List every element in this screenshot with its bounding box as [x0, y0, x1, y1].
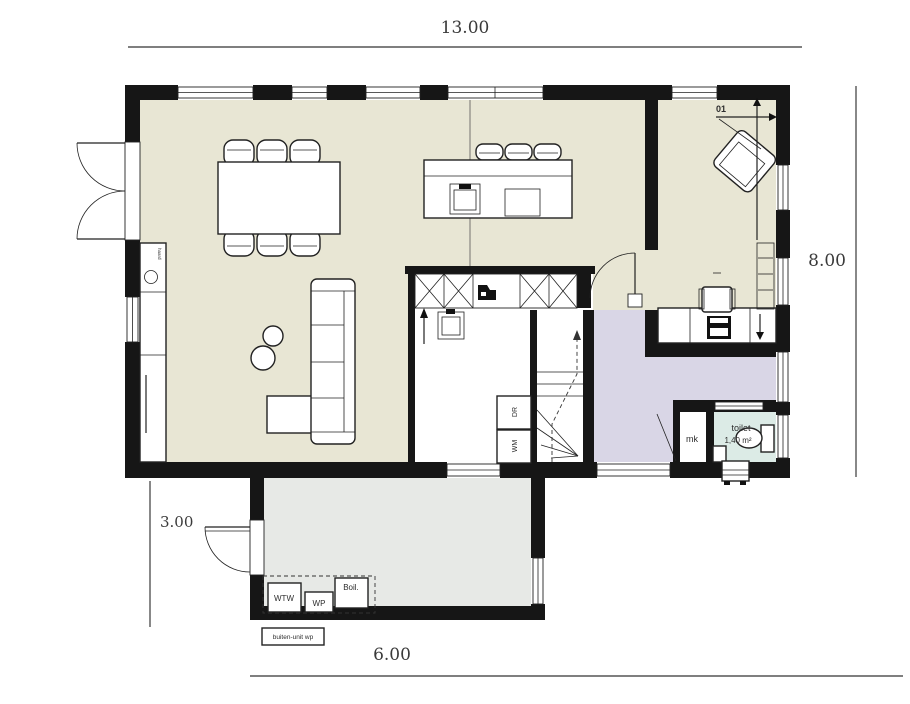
svg-text:buiten-unit wp: buiten-unit wp [273, 634, 314, 641]
window [597, 464, 670, 476]
svg-text:WM: WM [512, 440, 519, 453]
toilet-area-label: 1,40 m² [724, 436, 751, 445]
window [366, 87, 420, 98]
meter-cupboard-label: mk [686, 434, 698, 444]
window [127, 297, 138, 342]
french-doors [77, 142, 140, 240]
window [448, 87, 543, 98]
svg-text:WP: WP [313, 599, 326, 608]
bar-stool [476, 144, 503, 160]
floor-plan-page: haard [0, 0, 910, 704]
side-table [263, 326, 283, 346]
garage-side-door [205, 520, 264, 575]
outdoor-unit-label: buiten-unit wp [262, 628, 324, 645]
window [178, 87, 253, 98]
toilet-transom-window [715, 402, 763, 410]
garage-floor [264, 478, 531, 606]
fireplace-cabinet: haard [140, 243, 166, 462]
room-marker: 01 [716, 104, 726, 114]
toilet-label: toilet [731, 423, 751, 433]
window [778, 352, 788, 402]
window [778, 415, 788, 458]
fireplace-label: haard [157, 248, 162, 260]
svg-text:DR: DR [512, 407, 519, 417]
window [672, 87, 717, 98]
dimension-width-top: 13.00 [441, 18, 490, 38]
dimension-height-right: 8.00 [808, 251, 846, 271]
boiler-unit: Boil. [335, 578, 368, 608]
exterior-fixture [722, 461, 749, 485]
dimension-annex-height: 3.00 [160, 513, 193, 531]
side-table [251, 346, 275, 370]
sofa-chaise [267, 396, 313, 433]
sofa [311, 279, 355, 444]
washing-machine: WM [497, 430, 531, 463]
door-gap-floor [645, 250, 658, 310]
window [778, 258, 788, 305]
window [292, 87, 327, 98]
svg-text:Boil.: Boil. [343, 583, 359, 592]
hand-basin [713, 446, 726, 462]
floor-plan-svg: haard [0, 0, 910, 704]
heat-pump-unit: WP [305, 592, 333, 612]
dining-table [218, 162, 340, 234]
desk-chair [699, 287, 735, 312]
cabinet-row [415, 274, 577, 308]
window [778, 165, 788, 210]
window [533, 558, 543, 604]
dimension-annex-width: 6.00 [373, 645, 411, 665]
window [447, 464, 500, 476]
svg-text:WTW: WTW [274, 594, 294, 603]
bar-stool [505, 144, 532, 160]
bar-stool [534, 144, 561, 160]
dryer: DR [497, 396, 531, 429]
heat-recovery-unit: WTW [268, 583, 301, 612]
